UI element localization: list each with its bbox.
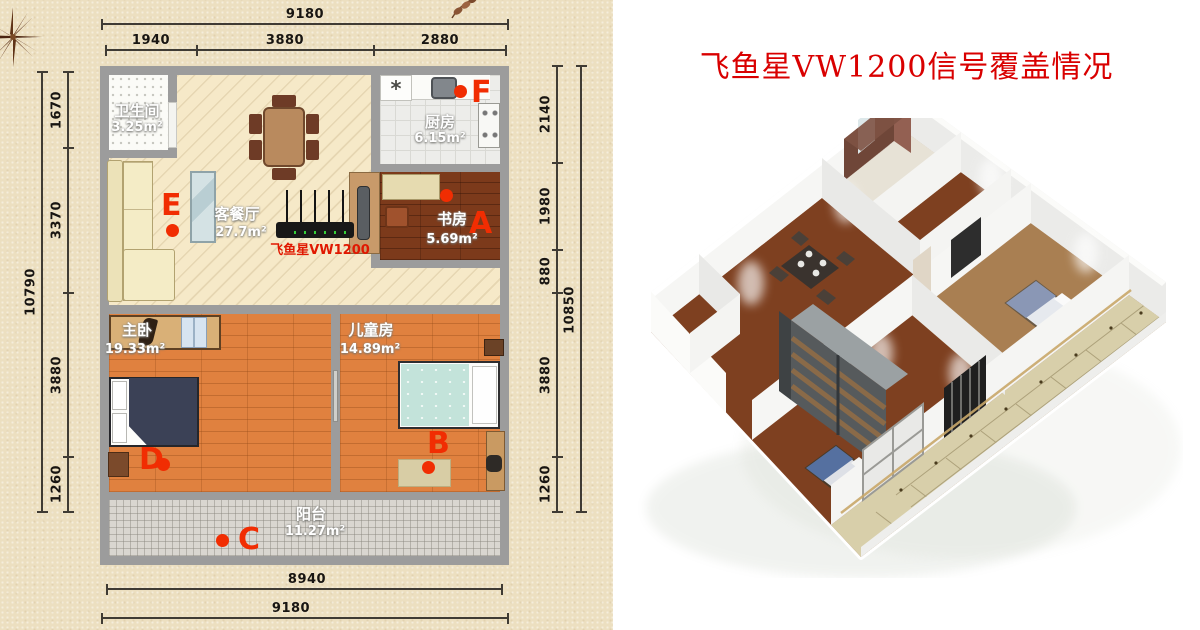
- wall-study-bottom: [371, 260, 500, 268]
- dim-left-seg2: 3370: [50, 201, 65, 239]
- kitchen-unit: *: [380, 75, 412, 101]
- master-bed-pillow: [112, 381, 127, 410]
- kids-bed-pillow: [472, 366, 497, 424]
- dim-top-seg2: 3880: [266, 33, 304, 48]
- router-antenna: [314, 190, 316, 223]
- leaf-icon: [448, 0, 478, 20]
- label-study-name: 书房: [437, 208, 467, 229]
- dim-line-right-seg3: [556, 250, 558, 293]
- dim-left-seg4: 1260: [50, 465, 65, 503]
- kitchen-sink: [431, 77, 457, 99]
- dim-right-total: 10850: [563, 286, 578, 334]
- label-balcony-name: 阳台: [296, 503, 326, 524]
- kids-cabinet: [484, 339, 504, 356]
- marker-dot-f: [454, 85, 467, 98]
- right-panel: 飞鱼星VW1200信号覆盖情况: [613, 0, 1200, 630]
- tv-screen: [357, 186, 370, 240]
- router-body: [276, 222, 354, 238]
- dining-chair-bottom: [272, 168, 296, 180]
- marker-dot-c: [216, 534, 229, 547]
- label-master-area: 19.33m²: [105, 342, 165, 357]
- dining-chair-left2: [249, 140, 262, 160]
- dim-top-total: 9180: [286, 7, 324, 22]
- study-chair: [385, 206, 409, 228]
- kids-bed-mattress: [401, 364, 469, 426]
- dim-line-left-total: [41, 72, 43, 512]
- label-balcony-area: 11.27m²: [285, 524, 345, 539]
- dim-line-right-seg4: [556, 293, 558, 457]
- bedroom-door: [333, 370, 338, 422]
- dim-line-left-seg2: [67, 148, 69, 293]
- dining-chair-left1: [249, 114, 262, 134]
- label-kids-area: 14.89m²: [340, 342, 400, 357]
- master-bed-pillow: [112, 413, 127, 443]
- label-kitchen-name: 厨房: [425, 111, 455, 132]
- label-bathroom-area: 3.25m²: [111, 120, 162, 135]
- bathroom-door: [168, 102, 177, 148]
- dim-line-right-total: [580, 66, 582, 512]
- floor-plan-sheet: 9180 1940 3880 2880 10790 1670 3370 3880…: [0, 0, 613, 630]
- dim-right-seg1: 2140: [539, 95, 554, 133]
- sofa-chaise: [123, 249, 175, 301]
- dim-line-top-seg1: [106, 49, 197, 51]
- stove-symbol: *: [391, 77, 402, 101]
- dining-table: [263, 107, 305, 167]
- dim-right-seg4: 3880: [539, 356, 554, 394]
- wall-balcony-top: [109, 492, 500, 500]
- marker-dot-a: [440, 189, 453, 202]
- label-kitchen-area: 6.15m²: [414, 131, 465, 146]
- dim-right-seg2: 1980: [539, 187, 554, 225]
- dim-bottom-outer: 9180: [272, 601, 310, 616]
- wall-bathroom-bottom: [109, 150, 177, 158]
- floor-plan: *: [100, 66, 509, 565]
- wall-bedrooms-top: [109, 305, 500, 314]
- router-antenna: [286, 190, 288, 223]
- dining-chair-right2: [306, 140, 319, 160]
- sofa: [107, 160, 123, 302]
- dining-chair-top: [272, 95, 296, 107]
- glass-cabinet: [190, 171, 216, 243]
- marker-d: D: [139, 445, 164, 475]
- marker-a: A: [469, 209, 492, 239]
- page: 9180 1940 3880 2880 10790 1670 3370 3880…: [0, 0, 1200, 630]
- router-antenna: [300, 190, 302, 223]
- label-living-name: 客餐厅: [214, 203, 259, 224]
- router-antenna: [328, 190, 330, 223]
- marker-f: F: [471, 78, 492, 108]
- dim-line-bottom-outer: [102, 617, 508, 619]
- dim-left-total: 10790: [24, 268, 39, 316]
- study-shelf: [382, 174, 440, 200]
- nightstand: [108, 452, 129, 477]
- router-antenna: [342, 190, 344, 223]
- shirt-icon: [181, 317, 207, 348]
- dim-top-seg1: 1940: [132, 33, 170, 48]
- dim-left-seg1: 1670: [50, 91, 65, 129]
- dim-line-left-seg3: [67, 293, 69, 457]
- label-bathroom-name: 卫生间: [114, 100, 159, 121]
- marker-e: E: [161, 191, 182, 221]
- dim-line-top-seg3: [374, 49, 506, 51]
- dim-top-seg3: 2880: [421, 33, 459, 48]
- dim-line-left-seg1: [67, 72, 69, 148]
- marker-dot-e: [166, 224, 179, 237]
- dim-line-bottom-inner: [107, 588, 502, 590]
- marker-dot-b: [422, 461, 435, 474]
- dim-right-seg5: 1260: [539, 465, 554, 503]
- marker-c: C: [238, 525, 260, 555]
- wall-kitchen-left: [371, 75, 380, 172]
- page-title: 飞鱼星VW1200信号覆盖情况: [613, 42, 1200, 86]
- wall-kitchen-bottom: [371, 164, 500, 172]
- label-living-area: 27.7m²: [215, 225, 266, 240]
- dim-right-seg3: 880: [539, 257, 554, 286]
- label-master-name: 主卧: [122, 319, 152, 340]
- label-kids-name: 儿童房: [348, 319, 393, 340]
- router-label: 飞鱼星VW1200: [265, 239, 375, 258]
- dim-left-seg3: 3880: [50, 356, 65, 394]
- dining-chair-right1: [306, 114, 319, 134]
- dim-line-top-total: [102, 23, 508, 25]
- dim-line-right-seg2: [556, 163, 558, 250]
- kids-chair: [486, 455, 502, 472]
- dim-line-right-seg5: [556, 457, 558, 512]
- dim-line-top-seg2: [197, 49, 374, 51]
- marker-b: B: [427, 429, 450, 459]
- apartment-3d-render: [631, 118, 1183, 578]
- dim-line-right-seg1: [556, 66, 558, 163]
- dim-bottom-inner: 8940: [288, 572, 326, 587]
- compass-icon: [0, 6, 46, 68]
- dim-line-left-seg4: [67, 457, 69, 512]
- master-bed-blanket: [129, 378, 197, 445]
